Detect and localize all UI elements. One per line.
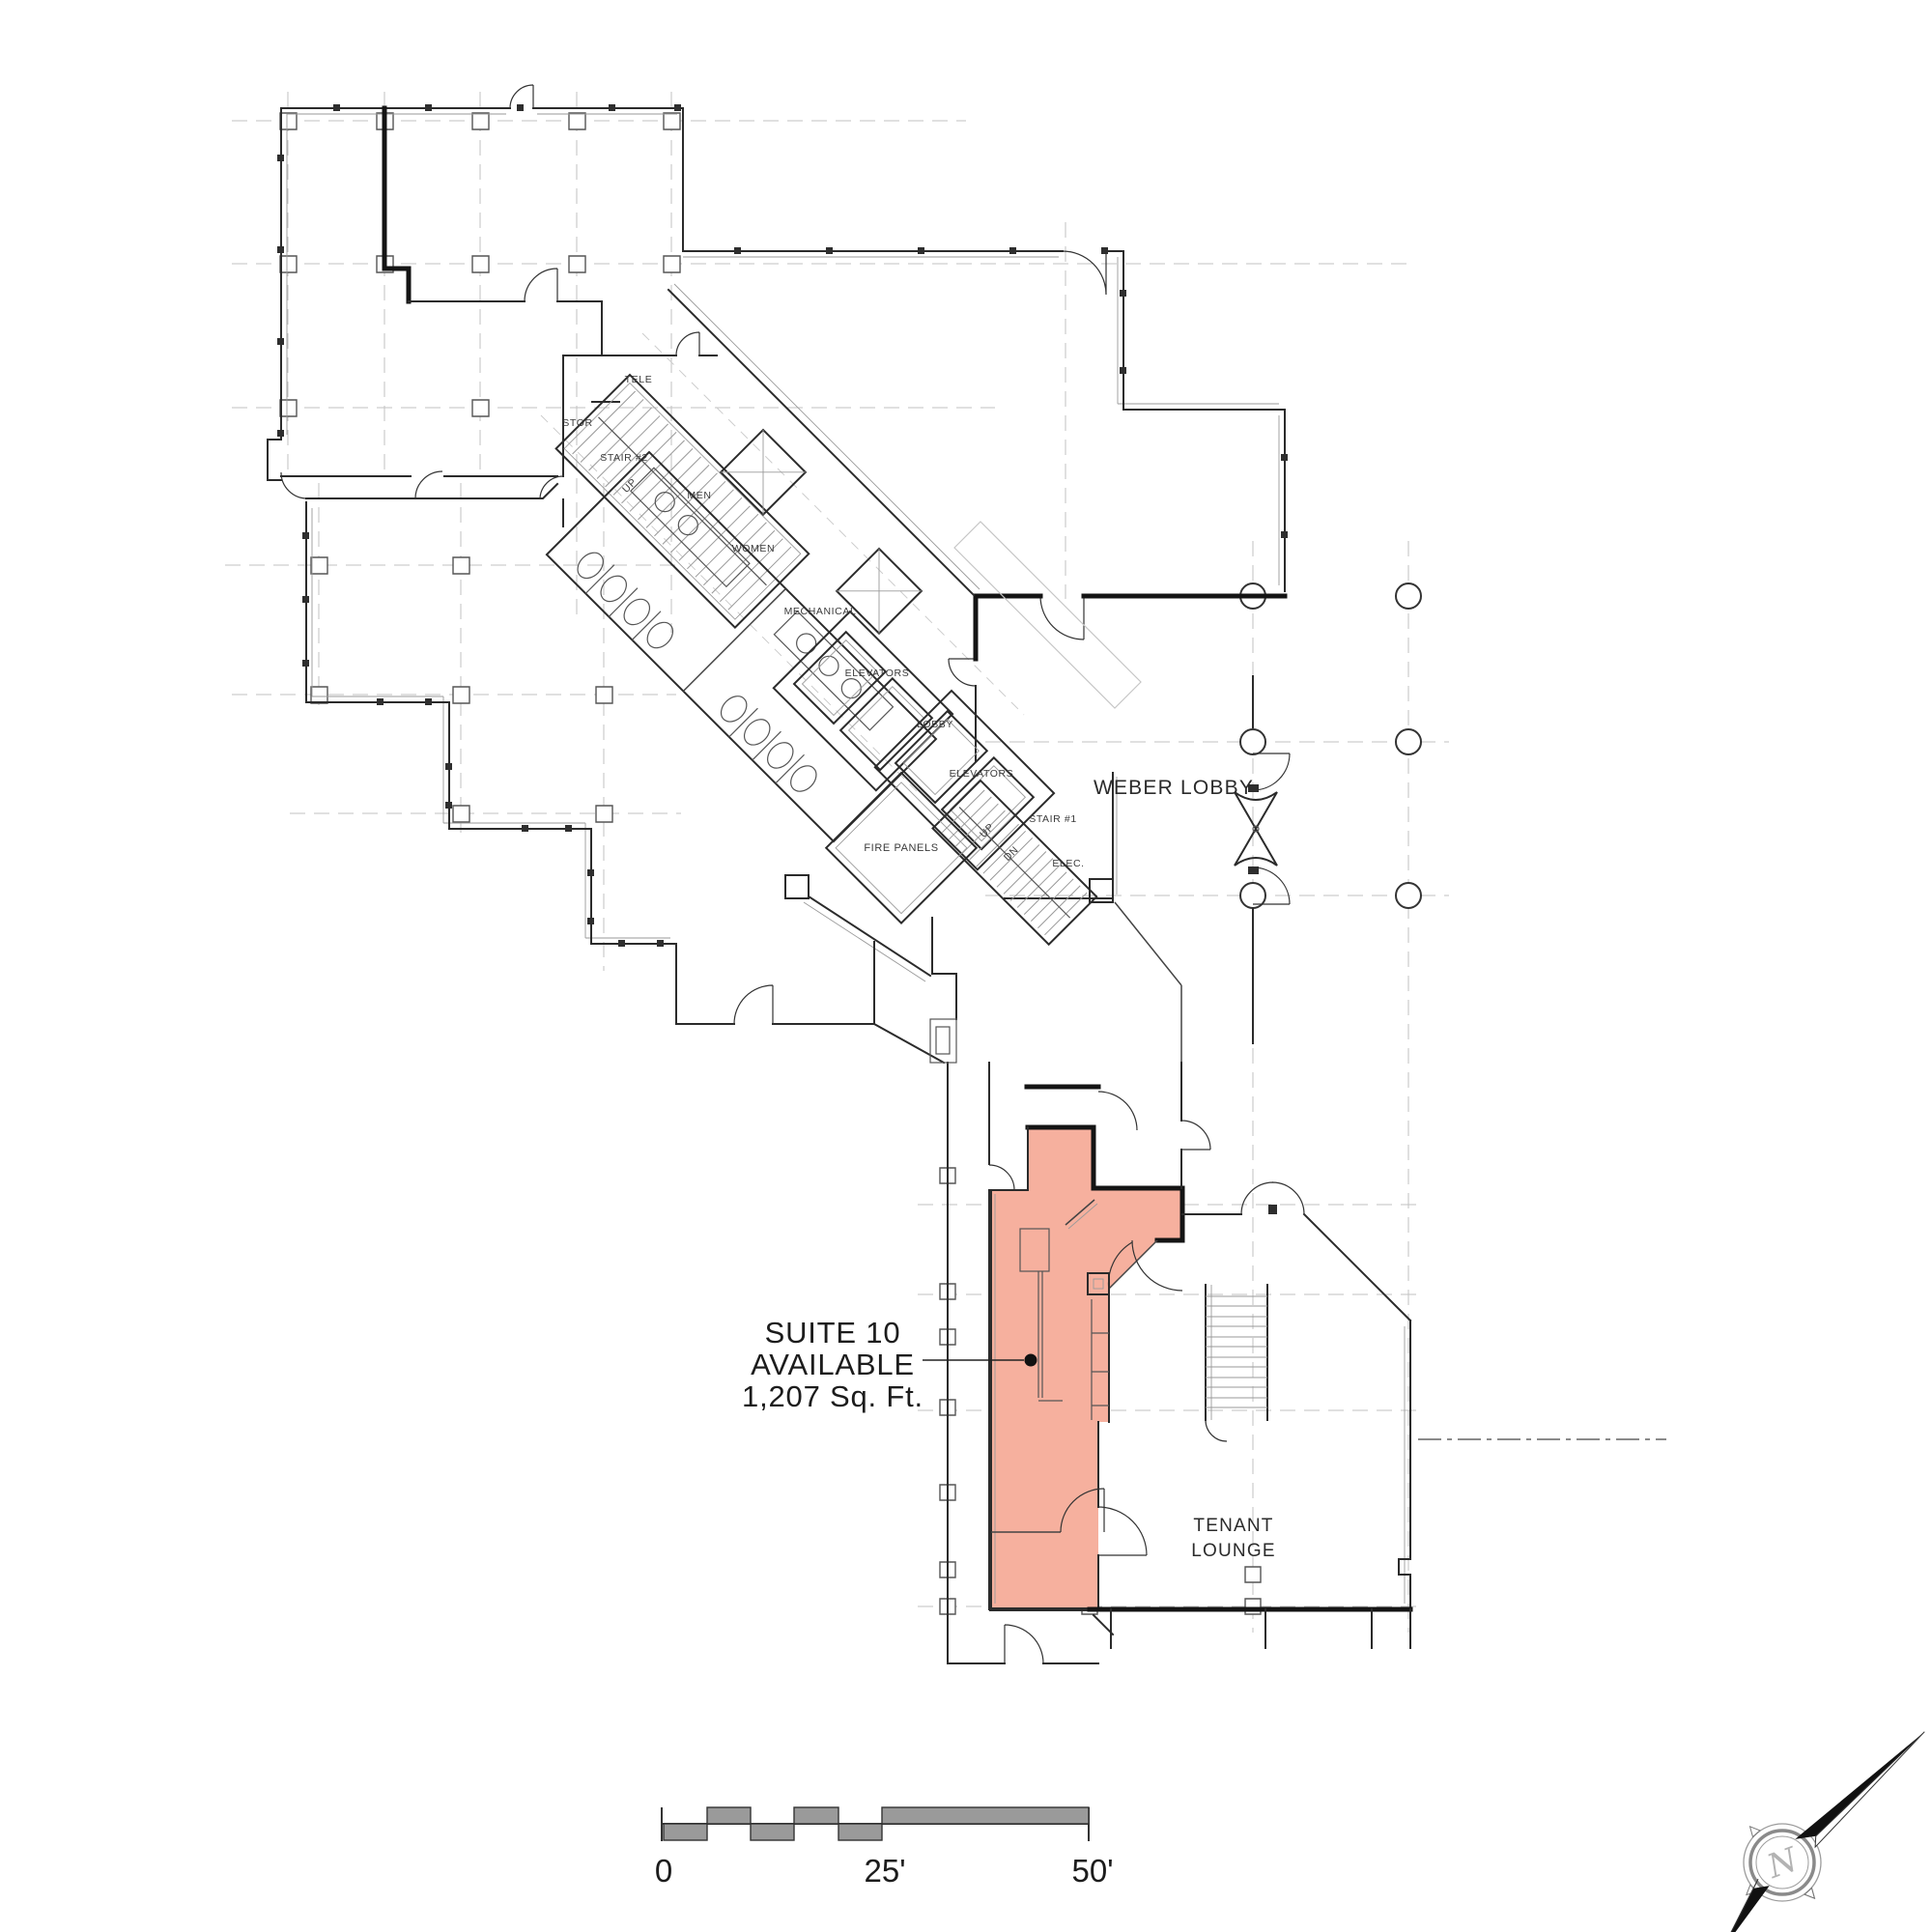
label-weber-lobby: WEBER LOBBY [1094, 777, 1254, 799]
corner-column [785, 875, 809, 898]
men-sink-counter [631, 468, 750, 586]
label-stair1: STAIR #1 [1029, 813, 1077, 825]
elevator-bank-upper [774, 611, 952, 790]
label-tele: TELE [625, 374, 653, 385]
leader-dot [1025, 1354, 1037, 1367]
needle-dark-half [1795, 1726, 1927, 1847]
column-grid [225, 92, 1666, 1633]
label-elevators-lower: ELEVATORS [950, 768, 1014, 780]
north-arrow-compass: N [1672, 1697, 1932, 1932]
canopy-outline [954, 522, 1141, 708]
label-elec: ELEC. [1052, 858, 1084, 869]
restrooms [547, 452, 936, 841]
weber-entrance-doors [1235, 676, 1290, 1043]
label-lobby: LOBBY [917, 719, 953, 730]
label-mechanical: MECHANICAL [784, 606, 857, 617]
shaft-x-2 [837, 549, 922, 634]
lounge-stair [1206, 1285, 1267, 1441]
wall-ticks [277, 104, 1288, 947]
suite-fill [991, 1127, 1182, 1609]
label-fire-panels: FIRE PANELS [864, 842, 938, 854]
scale-label-0: 0 [655, 1853, 672, 1889]
label-men: MEN [687, 490, 711, 501]
scale-bar-blocks [664, 1807, 1089, 1840]
label-elevators-upper: ELEVATORS [845, 668, 910, 679]
suite-callout-line3: 1,207 Sq. Ft. [742, 1379, 923, 1413]
label-stair1-dn: DN [1002, 844, 1021, 864]
suite-callout-line2: AVAILABLE [751, 1348, 915, 1381]
shaft-x-1 [721, 430, 806, 515]
label-tenant-line1: TENANT [1193, 1516, 1273, 1536]
scale-label-50: 50' [1071, 1853, 1113, 1889]
label-tenant-line2: LOUNGE [1191, 1541, 1275, 1561]
door-post [1268, 1205, 1277, 1214]
building-walls [268, 85, 1405, 1663]
label-women: WOMEN [732, 543, 775, 554]
scale-bar: 0 25' 50' [655, 1807, 1114, 1889]
suite-10-highlight-region [991, 1127, 1182, 1609]
floor-plan-svg: TELE STOR STAIR #2 UP MEN WOMEN MECHANIC… [0, 0, 1932, 1932]
needle-tail-dark [1705, 1879, 1780, 1932]
toilet-fixtures [573, 548, 821, 796]
label-stor: STOR [562, 417, 592, 429]
needle-light-half [1806, 1732, 1932, 1847]
compass-letter: N [1762, 1840, 1804, 1888]
suite-callout-line1: SUITE 10 [765, 1316, 901, 1350]
shaft-fixture [930, 1019, 956, 1063]
label-stair2: STAIR #2 [600, 452, 648, 464]
scale-label-25: 25' [864, 1853, 905, 1889]
compass-needle [1672, 1697, 1932, 1932]
stair-2 [556, 375, 810, 628]
